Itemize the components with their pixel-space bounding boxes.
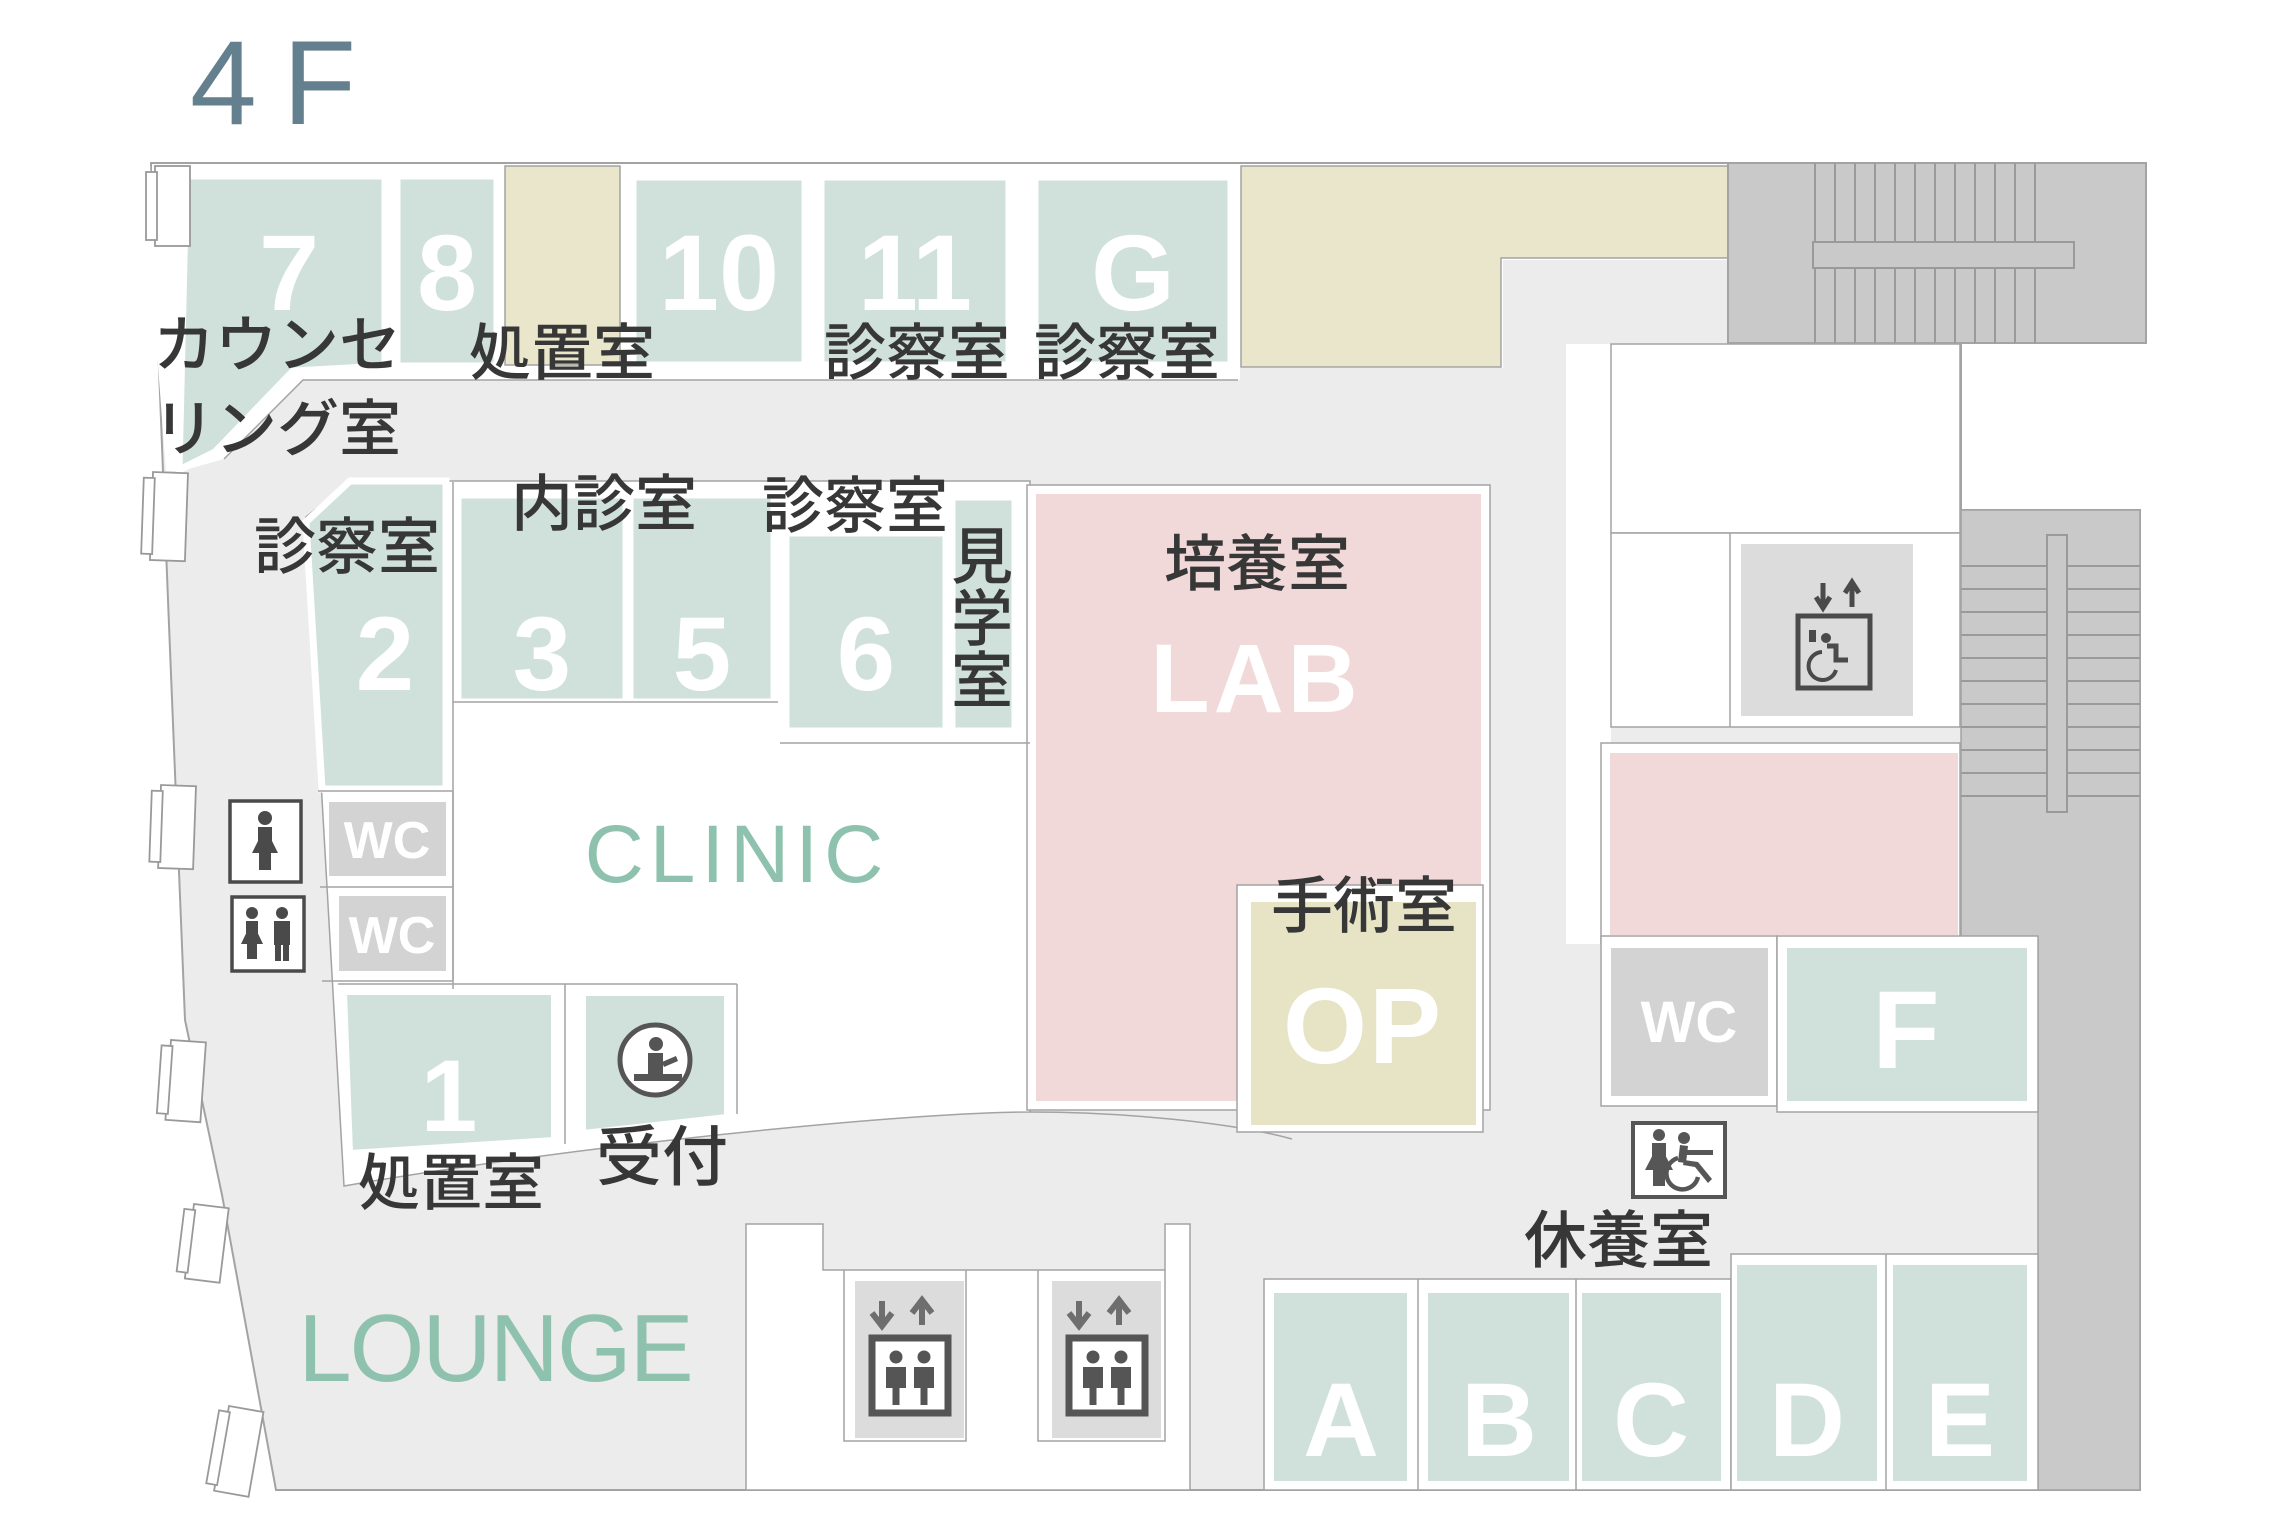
svg-text:3: 3 (513, 596, 571, 713)
svg-text:LOUNGE: LOUNGE (298, 1295, 691, 1402)
svg-text:B: B (1461, 1362, 1537, 1479)
svg-text:G: G (1091, 212, 1175, 333)
svg-text:7: 7 (259, 212, 319, 333)
svg-text:LAB: LAB (1150, 624, 1361, 733)
svg-text:10: 10 (659, 212, 779, 333)
svg-text:WC: WC (349, 907, 436, 965)
svg-text:D: D (1769, 1362, 1845, 1479)
svg-text:WC: WC (344, 812, 431, 870)
svg-text:OP: OP (1283, 965, 1443, 1086)
svg-text:6: 6 (837, 596, 895, 713)
svg-text:8: 8 (417, 212, 477, 333)
svg-text:F: F (1872, 969, 1939, 1092)
svg-text:WC: WC (1641, 990, 1738, 1055)
svg-text:C: C (1613, 1362, 1689, 1479)
svg-text:11: 11 (858, 212, 972, 333)
svg-text:2: 2 (356, 596, 414, 713)
svg-text:A: A (1303, 1362, 1379, 1479)
svg-text:CLINIC: CLINIC (585, 809, 890, 900)
svg-text:4F: 4F (190, 16, 382, 150)
svg-text:1: 1 (421, 1039, 478, 1153)
svg-text:5: 5 (673, 596, 731, 713)
svg-text:E: E (1925, 1362, 1995, 1479)
